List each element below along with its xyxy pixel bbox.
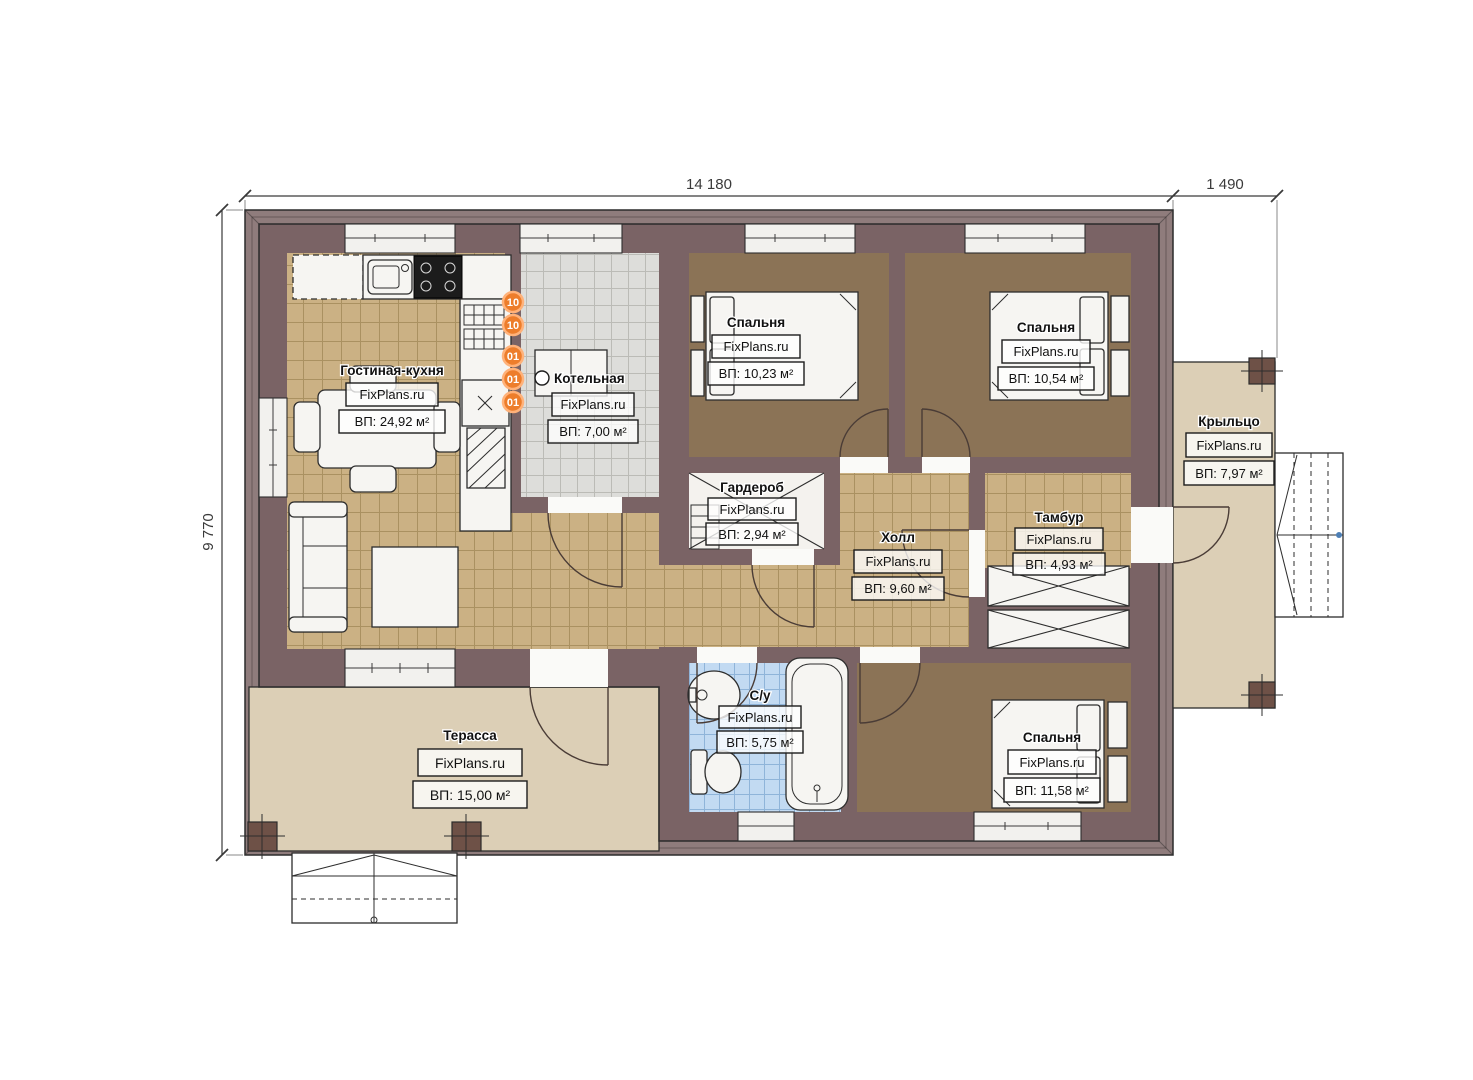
room-title: Спальня bbox=[1017, 320, 1075, 335]
floor-plan-page: 14 180 1 490 9 770 bbox=[0, 0, 1473, 1080]
bathroom-window bbox=[738, 812, 794, 841]
heating-marker: 10 bbox=[503, 292, 523, 312]
area-text: ВП: 2,94 м² bbox=[718, 527, 786, 542]
dimension-height: 9 770 bbox=[200, 513, 217, 551]
heating-marker: 01 bbox=[503, 369, 523, 389]
brand-text: FixPlans.ru bbox=[435, 755, 505, 771]
kitchen-cabinet-dashed bbox=[293, 255, 363, 299]
area-text: ВП: 7,97 м² bbox=[1195, 466, 1263, 481]
chair bbox=[294, 402, 320, 452]
nightstand bbox=[1108, 702, 1127, 748]
nightstand bbox=[691, 296, 704, 342]
sofa bbox=[289, 502, 347, 632]
vestibule-closet bbox=[988, 610, 1129, 648]
brand-text: FixPlans.ru bbox=[865, 554, 930, 569]
bedroom-3-window bbox=[974, 812, 1081, 841]
brand-text: FixPlans.ru bbox=[359, 387, 424, 402]
svg-text:10: 10 bbox=[507, 297, 519, 309]
svg-text:01: 01 bbox=[507, 351, 519, 363]
fridge bbox=[467, 428, 505, 488]
boiler-window bbox=[520, 224, 622, 253]
room-title: Котельная bbox=[554, 371, 625, 386]
nightstand bbox=[691, 350, 704, 396]
terrace-french-window bbox=[345, 649, 455, 687]
area-text: ВП: 10,23 м² bbox=[719, 366, 794, 381]
porch-area bbox=[1173, 350, 1343, 716]
steps-handle-dot bbox=[1336, 532, 1342, 538]
brand-text: FixPlans.ru bbox=[1019, 755, 1084, 770]
kitchen-sink bbox=[368, 260, 412, 294]
coffee-table bbox=[372, 547, 458, 627]
brand-text: FixPlans.ru bbox=[727, 710, 792, 725]
porch-steps bbox=[1275, 453, 1343, 617]
area-text: ВП: 15,00 м² bbox=[430, 787, 511, 803]
room-title: Гостиная-кухня bbox=[340, 363, 443, 378]
room-title: С/у bbox=[749, 688, 771, 703]
room-title: Гардероб bbox=[720, 480, 784, 495]
brand-text: FixPlans.ru bbox=[723, 339, 788, 354]
nightstand bbox=[1108, 756, 1127, 802]
brand-text: FixPlans.ru bbox=[560, 397, 625, 412]
toilet bbox=[691, 750, 741, 794]
heating-marker: 01 bbox=[503, 346, 523, 366]
kitchen-window bbox=[345, 224, 455, 253]
brand-text: FixPlans.ru bbox=[719, 502, 784, 517]
room-title: Терасса bbox=[443, 728, 497, 743]
room-title: Холл bbox=[881, 530, 915, 545]
chair bbox=[350, 466, 396, 492]
floor-plan-drawing: 14 180 1 490 9 770 bbox=[0, 0, 1473, 1080]
room-label-living-kitchen: Гостиная-кухня FixPlans.ru ВП: 24,92 м² bbox=[339, 363, 445, 433]
svg-text:10: 10 bbox=[507, 320, 519, 332]
room-title: Крыльцо bbox=[1198, 414, 1259, 429]
bedroom-1-window bbox=[745, 224, 855, 253]
kitchen-stove bbox=[414, 256, 462, 298]
brand-text: FixPlans.ru bbox=[1196, 438, 1261, 453]
nightstand bbox=[1111, 350, 1129, 396]
nightstand bbox=[1111, 296, 1129, 342]
brand-text: FixPlans.ru bbox=[1026, 532, 1091, 547]
heating-marker: 10 bbox=[503, 315, 523, 335]
boiler-symbol-icon bbox=[535, 371, 549, 385]
brand-text: FixPlans.ru bbox=[1013, 344, 1078, 359]
area-text: ВП: 10,54 м² bbox=[1009, 371, 1084, 386]
room-title: Спальня bbox=[727, 315, 785, 330]
heating-markers: 10 10 01 01 01 bbox=[503, 292, 523, 412]
area-text: ВП: 5,75 м² bbox=[726, 735, 794, 750]
area-text: ВП: 11,58 м² bbox=[1015, 783, 1089, 798]
dimension-width-porch: 1 490 bbox=[1206, 176, 1244, 193]
area-text: ВП: 24,92 м² bbox=[355, 414, 430, 429]
terrace-steps bbox=[292, 853, 457, 923]
svg-text:01: 01 bbox=[507, 374, 519, 386]
area-text: ВП: 4,93 м² bbox=[1025, 557, 1093, 572]
bedroom-2-window bbox=[965, 224, 1085, 253]
living-room-side-window bbox=[259, 398, 287, 497]
area-text: ВП: 9,60 м² bbox=[864, 581, 932, 596]
svg-text:01: 01 bbox=[507, 397, 519, 409]
heating-marker: 01 bbox=[503, 392, 523, 412]
area-text: ВП: 7,00 м² bbox=[559, 424, 627, 439]
room-title: Тамбур bbox=[1035, 510, 1084, 525]
room-title: Спальня bbox=[1023, 730, 1081, 745]
dimension-width-main: 14 180 bbox=[686, 176, 732, 193]
